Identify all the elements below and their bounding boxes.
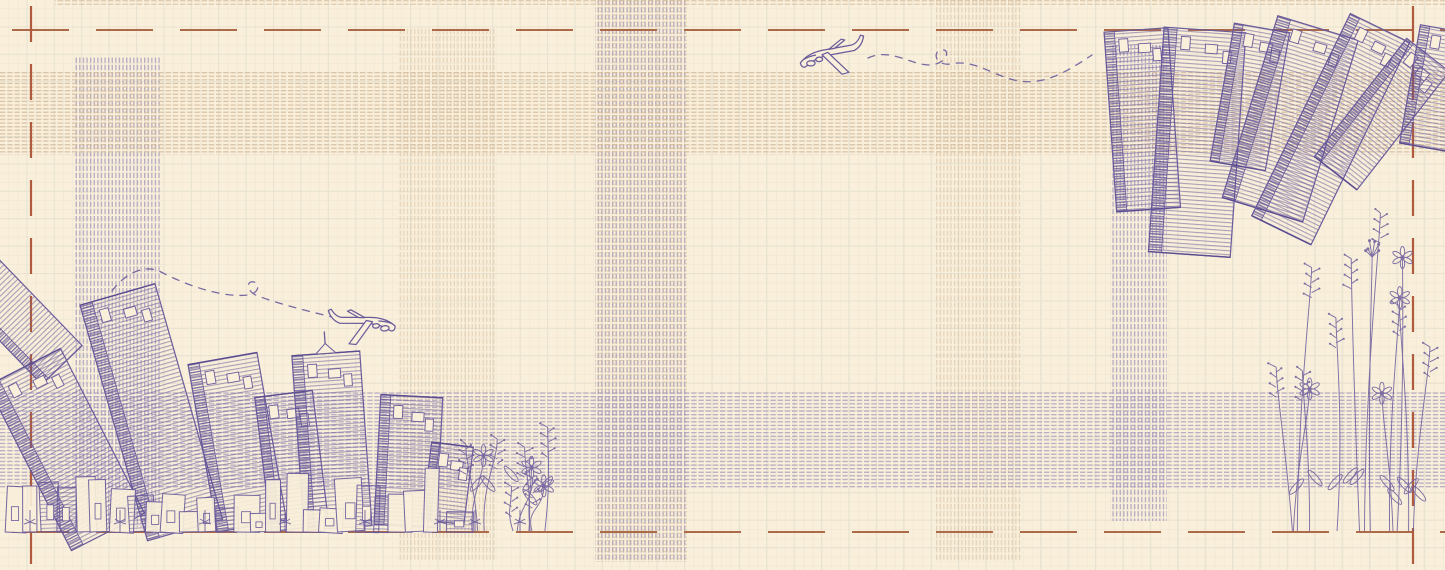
window-sketch: [425, 419, 434, 431]
window-sketch: [393, 405, 403, 418]
window-sketch: [412, 412, 424, 422]
window-sketch: [438, 453, 449, 467]
window-sketch: [1153, 48, 1162, 61]
engine: [807, 60, 816, 66]
window-sketch: [269, 405, 280, 419]
window-sketch: [1181, 36, 1191, 50]
window-sketch: [11, 507, 18, 521]
window-sketch: [152, 515, 159, 524]
window-sketch: [1205, 44, 1218, 54]
wallpaper-illustration: [0, 0, 1445, 570]
window-sketch: [326, 519, 334, 526]
window-sketch: [95, 503, 101, 519]
engine: [372, 323, 379, 328]
small-building-sketch: [179, 512, 199, 532]
window-sketch: [205, 370, 216, 384]
window-sketch: [1138, 43, 1151, 53]
window-sketch: [363, 506, 371, 520]
window-sketch: [270, 503, 275, 519]
engine: [816, 57, 823, 62]
window-sketch: [458, 468, 467, 481]
small-building-sketch: [374, 497, 390, 533]
window-sketch: [346, 503, 355, 519]
window-sketch: [344, 374, 353, 387]
window-sketch: [1243, 33, 1254, 47]
window-sketch: [1430, 35, 1441, 49]
window-sketch: [256, 522, 262, 528]
window-sketch: [307, 364, 317, 378]
window-sketch: [1119, 39, 1129, 53]
band-horizontal-tan: [55, 0, 1445, 7]
engine: [380, 325, 389, 331]
window-sketch: [242, 512, 251, 523]
window-sketch: [63, 507, 70, 520]
window-sketch: [328, 368, 341, 378]
window-sketch: [167, 511, 175, 523]
window-sketch: [227, 372, 240, 383]
window-sketch: [47, 505, 54, 520]
window-sketch: [243, 376, 253, 389]
window-sketch: [454, 521, 463, 527]
plaid-city-artwork: [0, 0, 1445, 570]
